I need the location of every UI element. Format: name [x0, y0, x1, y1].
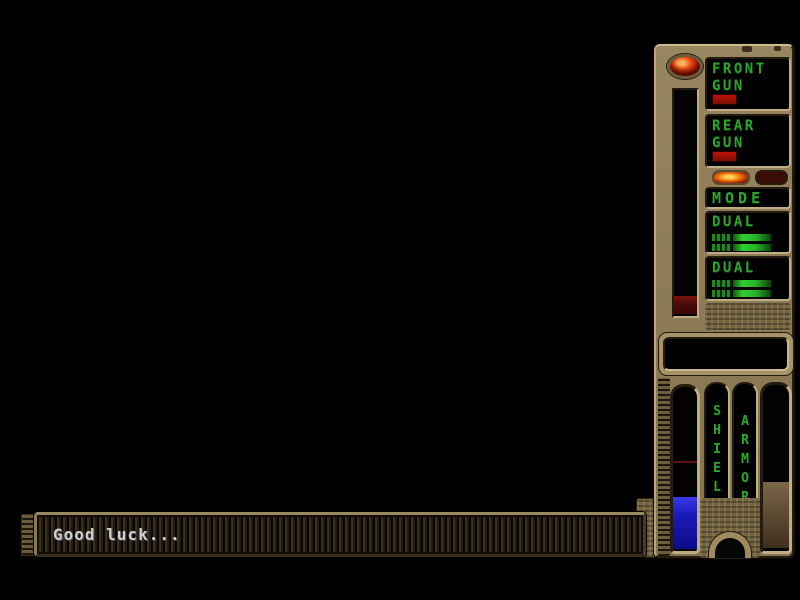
- mode-label: MODE: [707, 189, 789, 207]
- sidekick-left-bar-1: [712, 234, 789, 241]
- engine-greeble: [700, 498, 760, 558]
- armor-meter: [760, 382, 792, 554]
- sidekick-left-bar-2: [712, 244, 789, 251]
- bar-solid: [733, 244, 771, 251]
- sidekick-left-label: DUAL: [707, 214, 789, 231]
- playfield[interactable]: [0, 0, 654, 512]
- bar-segments: [712, 280, 732, 287]
- bar-solid: [733, 280, 771, 287]
- weapon-power-bar: [672, 88, 699, 318]
- panel-tick-strip: [658, 378, 670, 556]
- sidekick-right-display: DUAL: [705, 256, 791, 301]
- bar-solid: [733, 290, 771, 297]
- mode-indicator-row: [705, 170, 791, 186]
- sidekick-right-bar-1: [712, 280, 789, 287]
- panel-greeble: [774, 46, 781, 51]
- shield-fill: [673, 497, 697, 549]
- mode-display: MODE: [705, 187, 791, 209]
- sidekick-right-bar-2: [712, 290, 789, 297]
- circuit-greeble: [705, 303, 791, 330]
- rear-gun-display: REAR GUN: [705, 114, 791, 168]
- sidekick-left-display: DUAL: [705, 211, 791, 254]
- front-gun-label-line2: GUN: [707, 78, 789, 95]
- power-led-icon: [667, 54, 703, 79]
- armor-fill: [763, 482, 789, 548]
- bar-segments: [712, 234, 732, 241]
- engine-arch-icon: [709, 532, 751, 558]
- game-screen: Good luck... FRONT GUN REAR GUN MODE DUA…: [0, 0, 800, 600]
- mode-indicator-unlit-icon: [755, 170, 788, 185]
- rear-gun-ammo-bar: [712, 151, 737, 162]
- sidekick-right-label: DUAL: [707, 260, 789, 277]
- rear-gun-label-line1: REAR: [707, 118, 789, 135]
- mode-indicator-lit-icon: [712, 170, 750, 185]
- shield-marker-line: [673, 461, 697, 463]
- hud-panel: FRONT GUN REAR GUN MODE DUAL: [654, 44, 794, 558]
- panel-greeble: [742, 46, 752, 52]
- score-display: [658, 332, 794, 376]
- shield-meter: [670, 384, 700, 554]
- bar-segments: [712, 244, 732, 251]
- front-gun-display: FRONT GUN: [705, 57, 791, 111]
- rear-gun-label-line2: GUN: [707, 135, 789, 152]
- message-text: Good luck...: [37, 525, 181, 544]
- armor-label: ARMOR: [738, 414, 753, 509]
- front-gun-label-line1: FRONT: [707, 61, 789, 78]
- bar-segments: [712, 290, 732, 297]
- bar-solid: [733, 234, 771, 241]
- message-bar: Good luck...: [34, 512, 646, 557]
- score-display-screen: [663, 337, 789, 371]
- weapon-power-fill: [674, 296, 697, 314]
- front-gun-ammo-bar: [712, 94, 737, 105]
